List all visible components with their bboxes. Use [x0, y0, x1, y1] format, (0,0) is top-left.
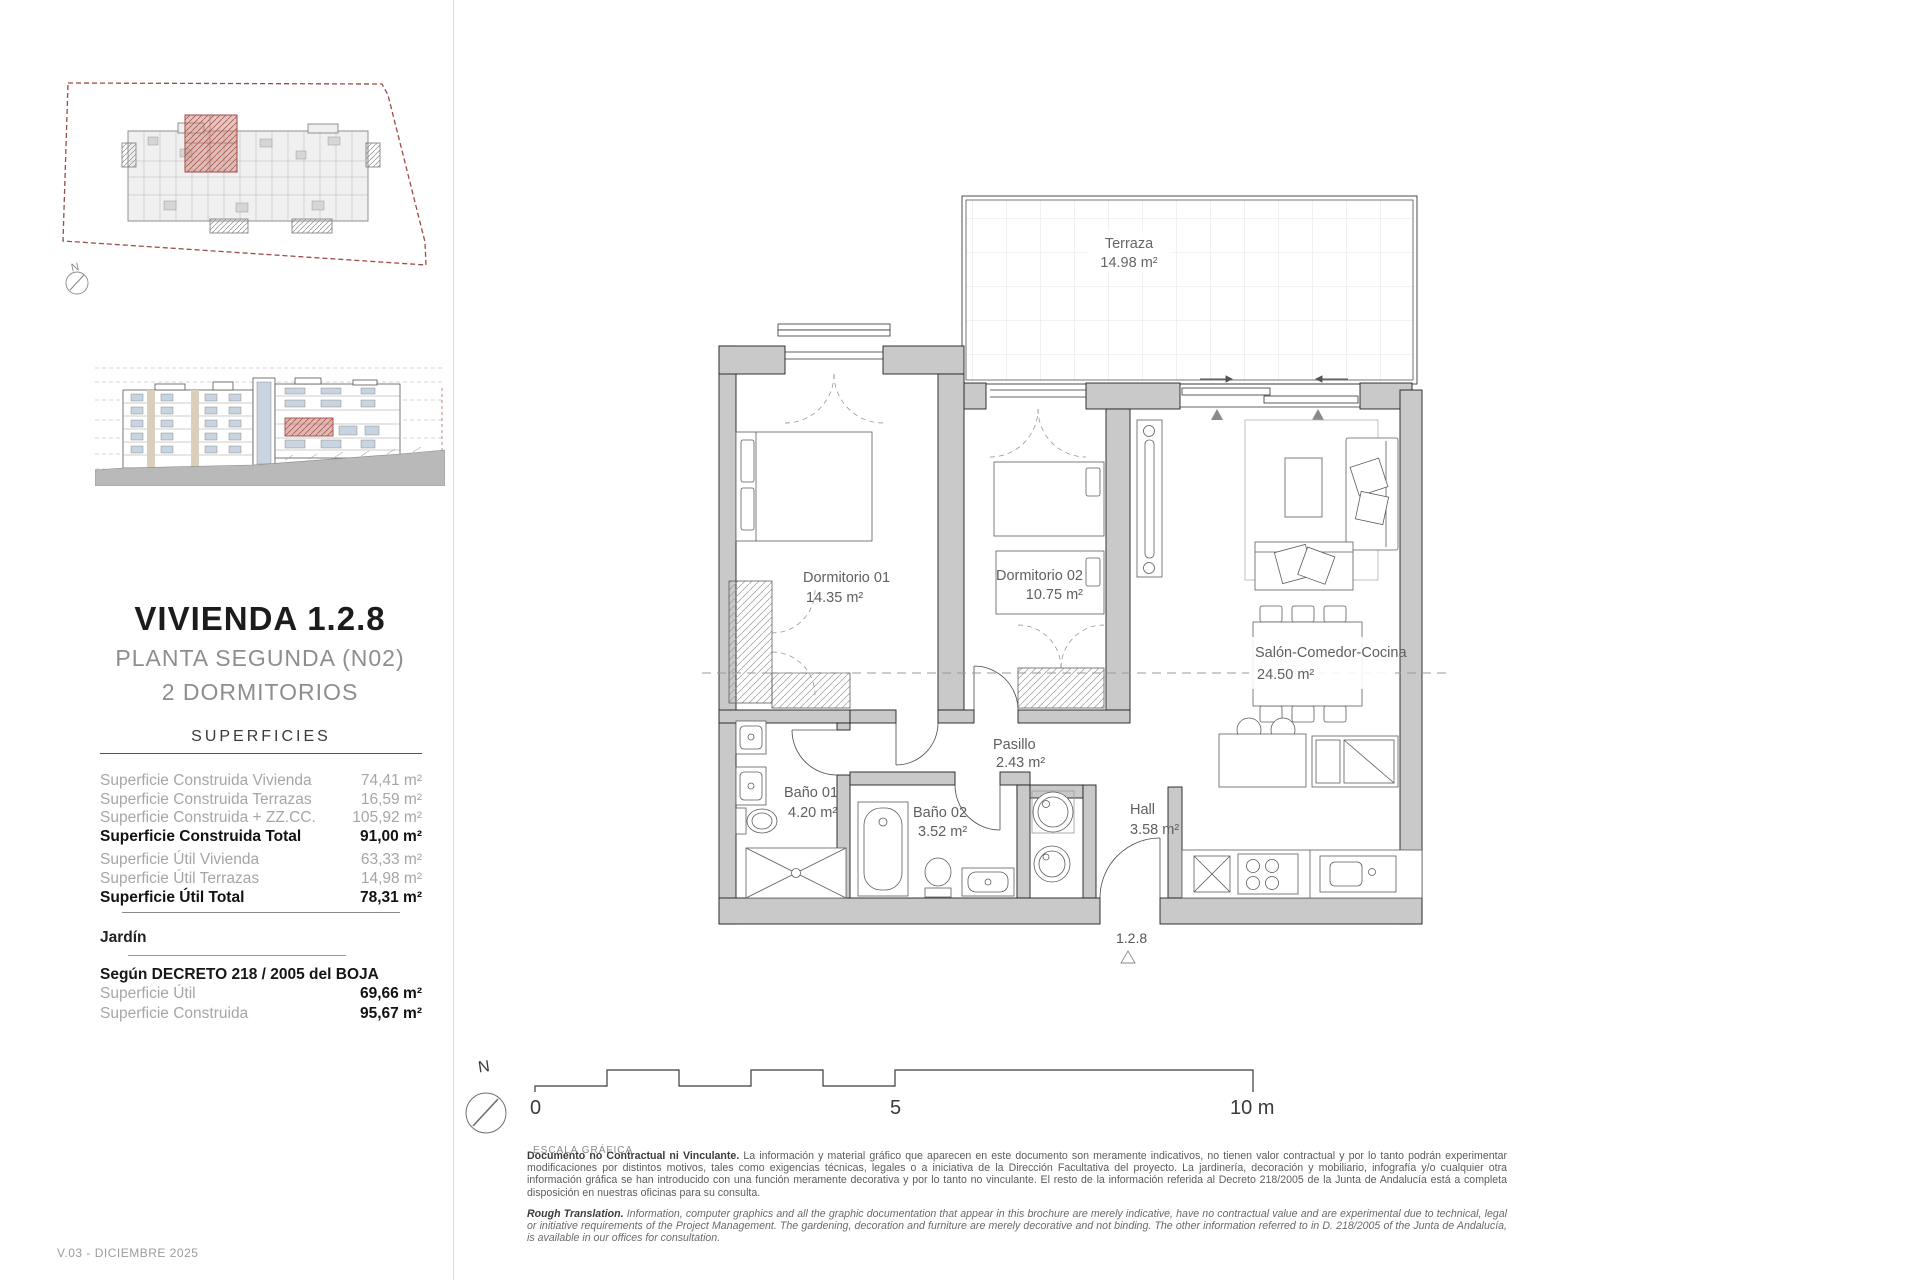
room-area-terraza: 14.98 m²: [1100, 255, 1157, 271]
version-label: V.03 - DICIEMBRE 2025: [57, 1246, 198, 1260]
north-arrow-icon: N: [66, 261, 88, 294]
north-arrow-icon: N: [466, 1058, 506, 1133]
building-footprint: [122, 123, 380, 233]
divider: [128, 955, 346, 956]
elevation-thumbnail: [95, 338, 445, 486]
site-plan-thumbnail: N: [60, 65, 440, 295]
table-row: Superficie Útil Terrazas14,98 m²: [100, 870, 422, 889]
legal-disclaimer: Documento no Contractual ni Vinculante. …: [527, 1150, 1507, 1244]
table-row: Superficie Construida95,67 m²: [100, 1004, 422, 1024]
disclaimer-english: Rough Translation. Information, computer…: [527, 1208, 1507, 1245]
table-row: Superficie Construida Vivienda74,41 m²: [100, 772, 422, 791]
decreto-heading: Según DECRETO 218 / 2005 del BOJA: [100, 966, 422, 984]
table-row: Superficie Útil Vivienda63,33 m²: [100, 851, 422, 870]
disclaimer-spanish: Documento no Contractual ni Vinculante. …: [527, 1150, 1507, 1199]
room-area-bano1: 4.20 m²: [788, 805, 837, 821]
room-area-bano2: 3.52 m²: [918, 824, 967, 840]
room-label-dorm1: Dormitorio 01: [803, 570, 890, 586]
table-row: Superficie Construida Terrazas16,59 m²: [100, 791, 422, 810]
highlighted-unit: [185, 115, 237, 172]
room-label-salon: Salón-Comedor-Cocina: [1255, 645, 1407, 661]
unit-number-label: 1.2.8: [1116, 930, 1147, 946]
svg-text:N: N: [477, 1058, 491, 1076]
page-subtitle-bedrooms: 2 DORMITORIOS: [60, 679, 460, 706]
room-area-dorm1: 14.35 m²: [806, 590, 863, 606]
table-row-total: Superficie Construida Total91,00 m²: [100, 828, 422, 847]
room-area-dorm2: 10.75 m²: [1026, 587, 1083, 603]
page-title: VIVIENDA 1.2.8: [60, 600, 460, 638]
room-label-terraza: Terraza: [1105, 236, 1154, 252]
table-row: Superficie Útil69,66 m²: [100, 984, 422, 1004]
title-block: VIVIENDA 1.2.8 PLANTA SEGUNDA (N02) 2 DO…: [60, 600, 460, 706]
room-label-hall: Hall: [1130, 802, 1155, 818]
divider: [122, 912, 400, 913]
room-area-salon: 24.50 m²: [1257, 667, 1314, 683]
building-elevation: [123, 378, 400, 468]
scale-bar-line: [535, 1070, 1253, 1092]
floor-plan: Terraza 14.98 m² Dormitorio 01 14.35 m² …: [700, 150, 1460, 980]
room-area-pasillo: 2.43 m²: [996, 755, 1045, 771]
vent-markers: [1211, 409, 1324, 420]
table-row: Superficie Construida + ZZ.CC.105,92 m²: [100, 809, 422, 828]
entrance-marker-icon: [1121, 951, 1135, 963]
table-row-total: Superficie Útil Total78,31 m²: [100, 889, 422, 908]
room-label-pasillo: Pasillo: [993, 737, 1036, 753]
areas-table: SUPERFICIES Superficie Construida Vivien…: [100, 728, 422, 1023]
room-area-hall: 3.58 m²: [1130, 822, 1179, 838]
scale-tick-10: 10 m: [1230, 1097, 1274, 1119]
brochure-page: N: [0, 0, 1920, 1280]
page-subtitle-floor: PLANTA SEGUNDA (N02): [60, 645, 460, 672]
highlighted-unit-elevation: [285, 418, 333, 436]
scale-tick-5: 5: [890, 1097, 901, 1119]
scale-tick-0: 0: [530, 1097, 541, 1119]
terrace: [962, 196, 1417, 384]
room-label-dorm2: Dormitorio 02: [996, 568, 1083, 584]
room-label-bano2: Baño 02: [913, 805, 967, 821]
areas-table-heading: SUPERFICIES: [100, 728, 422, 754]
room-label-bano1: Baño 01: [784, 785, 838, 801]
jardin-label: Jardín: [100, 929, 422, 947]
